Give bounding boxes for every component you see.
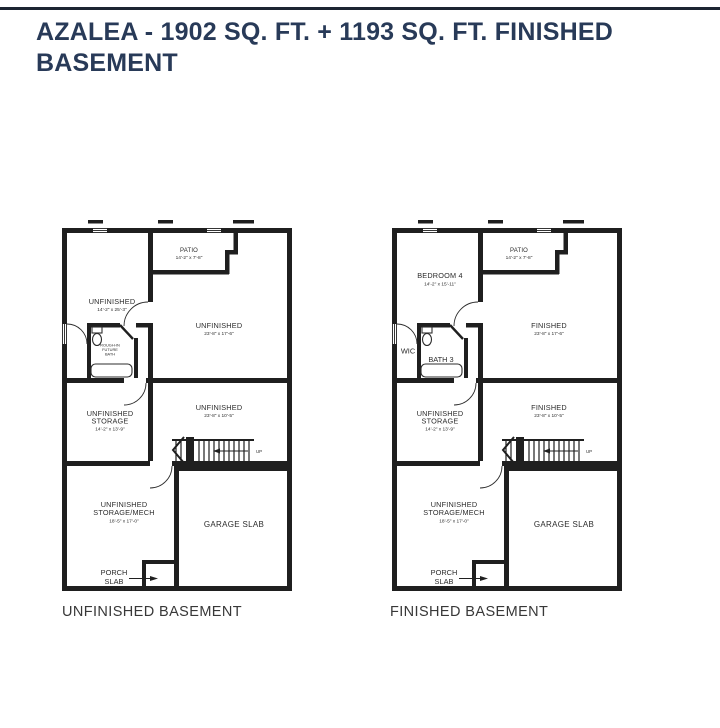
up-label: UP <box>586 449 592 454</box>
room-name: STORAGE/MECH <box>93 508 154 517</box>
up-label: UP <box>256 449 262 454</box>
room-dims: 23'-8" x 10'-5" <box>534 413 564 419</box>
wic-label: WIC <box>401 347 416 356</box>
room-dims: 14'-2" x 7'-8" <box>506 255 533 261</box>
porch-label: SLAB <box>105 577 124 586</box>
room-name: STORAGE <box>422 417 459 426</box>
room-name: UNFINISHED <box>196 403 243 412</box>
room-name: STORAGE <box>92 417 129 426</box>
room-dims: 18'-5" x 17'-0" <box>439 519 469 525</box>
page-title: AZALEA - 1902 SQ. FT. + 1193 SQ. FT. FIN… <box>36 17 626 80</box>
room-name: STORAGE/MECH <box>423 508 484 517</box>
floor-plan-finished-basement: BEDROOM 4 14'-2" x 15'-11" PATIO 14'-2" … <box>392 216 622 600</box>
porch-label: PORCH <box>101 568 128 577</box>
room-dims: 14'-2" x 13'-9" <box>425 427 455 433</box>
floor-plan-page: { "page": { "title": "AZALEA - 1902 SQ. … <box>0 0 720 728</box>
floor-plan-unfinished-basement: UNFINISHED 14'-2" x 25'-3" PATIO 14'-2" … <box>62 216 292 600</box>
porch-label: SLAB <box>435 577 454 586</box>
room-dims: 23'-8" x 17'-6" <box>534 331 564 337</box>
room-name: UNFINISHED <box>89 297 136 306</box>
room-name: FINISHED <box>531 321 567 330</box>
bath-label: BATH 3 <box>428 355 453 364</box>
room-name: PATIO <box>510 248 528 254</box>
room-name: UNFINISHED <box>196 321 243 330</box>
porch-label: PORCH <box>431 568 458 577</box>
room-dims: 14'-2" x 15'-11" <box>424 282 456 288</box>
caption-finished-basement: FINISHED BASEMENT <box>390 604 548 620</box>
room-dims: 14'-2" x 13'-9" <box>95 427 125 433</box>
room-name: BEDROOM 4 <box>417 271 463 280</box>
room-dims: 23'-8" x 10'-5" <box>204 413 234 419</box>
room-dims: 23'-8" x 17'-6" <box>204 331 234 337</box>
bath-note: BATH <box>105 352 115 357</box>
room-name: PATIO <box>180 248 198 254</box>
room-dims: 18'-5" x 17'-0" <box>109 519 139 525</box>
room-name: FINISHED <box>531 403 567 412</box>
room-dims: 14'-2" x 25'-3" <box>97 307 127 313</box>
caption-unfinished-basement: UNFINISHED BASEMENT <box>62 604 242 620</box>
room-name: GARAGE SLAB <box>204 520 264 529</box>
top-divider-rule <box>0 7 720 10</box>
room-name: GARAGE SLAB <box>534 520 594 529</box>
room-dims: 14'-2" x 7'-8" <box>176 255 203 261</box>
